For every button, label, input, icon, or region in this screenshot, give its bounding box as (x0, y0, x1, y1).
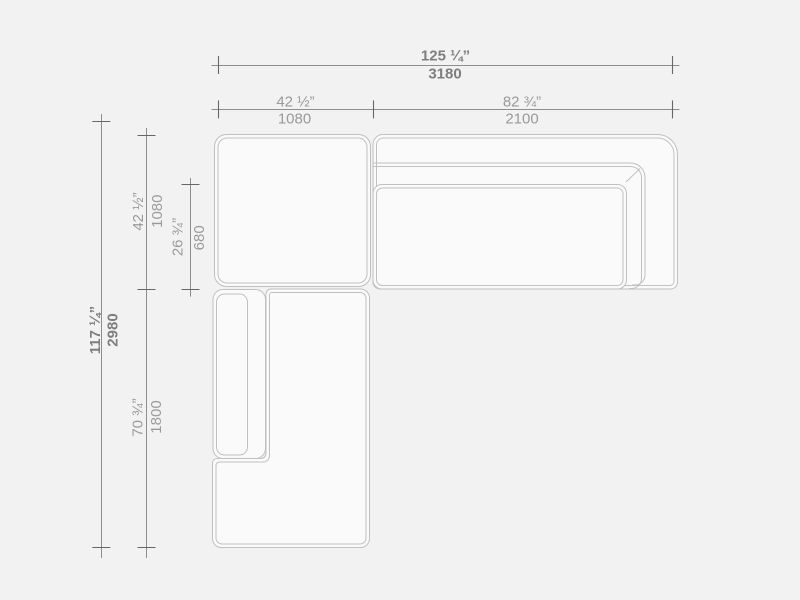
svg-text:3180: 3180 (428, 65, 461, 82)
svg-text:125 ¼”: 125 ¼” (421, 48, 470, 65)
svg-text:26 ¾”: 26 ¾” (169, 218, 186, 256)
svg-text:1080: 1080 (149, 195, 166, 228)
svg-text:2100: 2100 (505, 111, 538, 128)
svg-text:42 ½”: 42 ½” (130, 192, 147, 230)
svg-text:70 ¾”: 70 ¾” (129, 398, 146, 436)
svg-text:117 ¼”: 117 ¼” (87, 306, 104, 354)
svg-text:82 ¾”: 82 ¾” (503, 94, 541, 111)
svg-text:42 ½”: 42 ½” (276, 94, 314, 111)
svg-text:1080: 1080 (278, 111, 311, 128)
svg-text:680: 680 (191, 225, 208, 250)
svg-text:1800: 1800 (148, 400, 165, 433)
svg-text:2980: 2980 (104, 313, 121, 346)
